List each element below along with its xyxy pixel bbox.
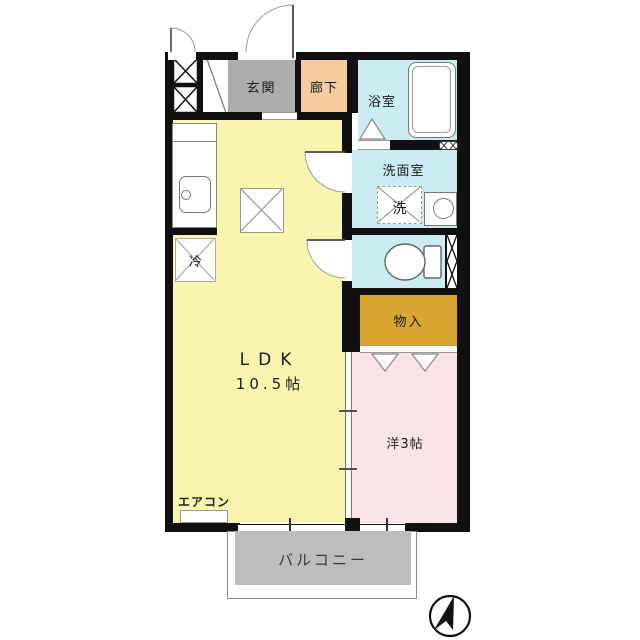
wall-right [457,52,470,531]
partition-ldk-western [345,352,352,523]
aircon-unit [180,510,228,523]
kitchen-counter [172,123,217,228]
washer-label: 洗 [378,190,421,226]
wall-wash-toilet [352,228,457,235]
ldk-label-group: LDK 10.5帖 [195,350,345,394]
compass-icon [427,593,475,639]
wall-storage-left [342,288,360,352]
washroom-window-icon [439,141,458,150]
western-room-label: 洋3帖 [360,430,450,454]
wall-ldk-right-b [342,193,352,240]
bathroom-label: 浴室 [356,88,408,112]
fridge-label: 冷 [176,239,215,281]
washbasin-bowl [433,198,454,219]
washroom-door-arc-icon [303,148,347,194]
meter-box-icon [172,57,199,114]
toilet-icon [382,241,444,283]
bath-door-opening [358,140,390,150]
balcony-floor: バルコニー [235,531,411,585]
balcony-label: バルコニー [235,547,411,571]
washing-machine-box: 洗 [377,186,422,224]
storage-door-track [360,345,457,353]
wall-genkan-bottom-b [297,112,347,120]
bathtub-inner-line [412,66,451,133]
storage-folding-door-icon [368,353,443,373]
partition-tick-2 [339,468,357,470]
shoe-cabinet [203,59,228,113]
floorplan-canvas: 洗 [0,0,640,640]
wall-kitchen-stub [165,228,217,235]
bathtub [408,62,456,138]
wall-ldk-right-a [342,113,352,153]
bath-folding-door-icon [358,117,387,140]
meterbox-door-arc-icon [166,24,200,54]
partition-tick-1 [339,410,357,412]
ldk-hatch-box [240,188,284,233]
ldk-size-label: 10.5帖 [195,373,345,394]
hallway-label: 廊下 [301,59,347,113]
washroom-label: 洗面室 [356,158,451,180]
entrance-door-arc-icon [244,3,296,60]
washbasin [424,192,457,226]
genkan-label: 玄関 [228,59,295,113]
ldk-label: LDK [195,350,345,370]
entrance-step [262,112,297,120]
pipe-shaft-hatch-icon [445,235,457,288]
fridge-box: 冷 [175,238,216,282]
aircon-label: エアコン [178,493,230,510]
toilet-door-arc-icon [305,236,347,282]
kitchen-faucet [181,190,191,200]
kitchen-counter-divider [173,141,216,142]
storage-label: 物入 [360,295,457,345]
